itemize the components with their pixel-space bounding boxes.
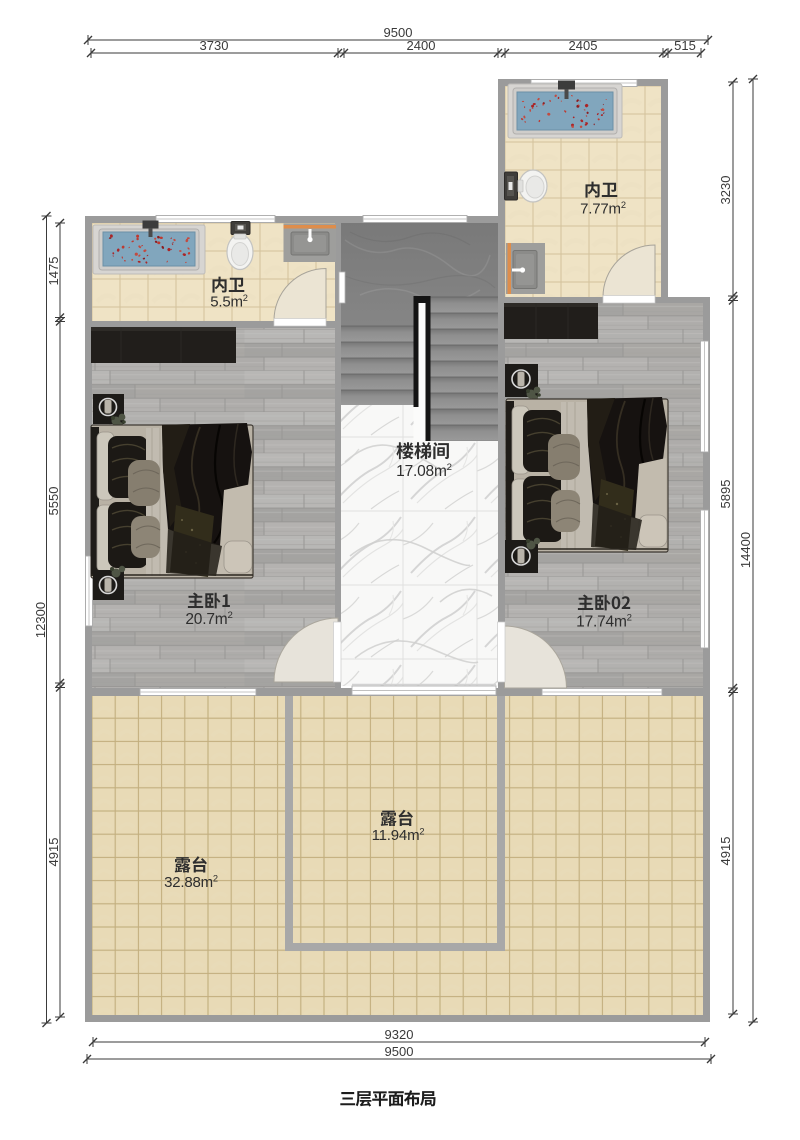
svg-text:1475: 1475 bbox=[46, 257, 61, 286]
svg-text:515: 515 bbox=[674, 38, 696, 53]
svg-text:14400: 14400 bbox=[738, 532, 753, 568]
svg-text:4915: 4915 bbox=[718, 837, 733, 866]
svg-text:5550: 5550 bbox=[46, 487, 61, 516]
svg-text:2400: 2400 bbox=[407, 38, 436, 53]
svg-text:5.5m2: 5.5m2 bbox=[210, 293, 248, 311]
svg-text:3730: 3730 bbox=[200, 38, 229, 53]
svg-text:7.77m2: 7.77m2 bbox=[580, 200, 626, 218]
svg-text:5895: 5895 bbox=[718, 480, 733, 509]
svg-text:20.7m2: 20.7m2 bbox=[185, 610, 232, 628]
svg-text:12300: 12300 bbox=[33, 602, 48, 638]
svg-text:2405: 2405 bbox=[569, 38, 598, 53]
svg-text:32.88m2: 32.88m2 bbox=[164, 873, 218, 891]
svg-text:9500: 9500 bbox=[385, 1044, 414, 1059]
svg-text:4915: 4915 bbox=[46, 838, 61, 867]
svg-text:9320: 9320 bbox=[385, 1027, 414, 1042]
svg-text:3230: 3230 bbox=[718, 176, 733, 205]
svg-text:17.74m2: 17.74m2 bbox=[576, 613, 632, 631]
svg-text:11.94m2: 11.94m2 bbox=[372, 826, 425, 844]
svg-text:17.08m2: 17.08m2 bbox=[396, 462, 452, 480]
